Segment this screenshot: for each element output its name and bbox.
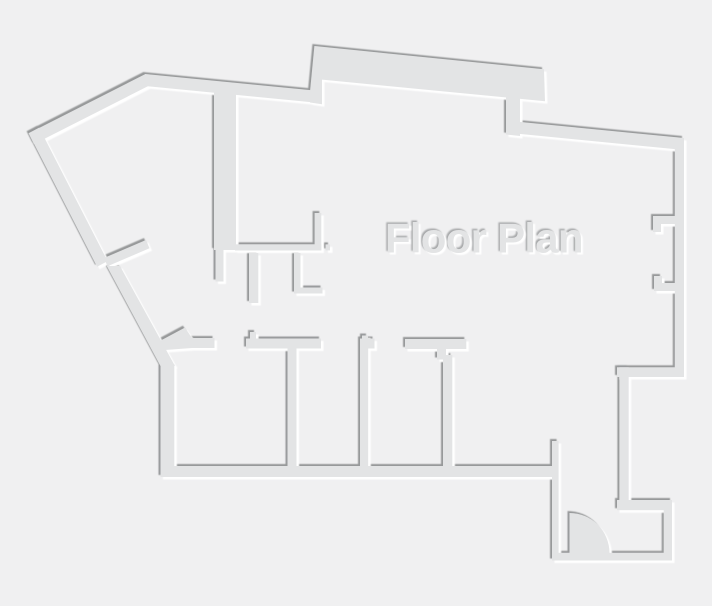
svg-text:Floor Plan: Floor Plan [385, 215, 584, 262]
